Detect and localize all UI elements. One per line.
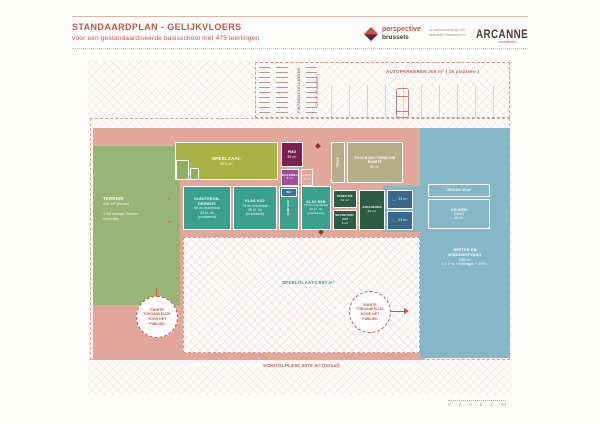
room-terrein: TERREIN 465 m² (totaal) + 54 nieuwe bome… [93,146,180,305]
perspective-wordmark: perspective brussels [382,26,421,41]
scale-tick: 4 [469,402,472,407]
room-keuken: KEUKEN (klein) 30 m² [428,199,490,229]
scale-bar: 0 2 4 6 8 10 [448,400,506,407]
sanitair-name: SANITAIR [287,200,291,216]
public-access-circle-right: RUIMTE TOEGANKELIJK VOOR HET PUBLIEK [349,291,391,333]
room-keukenbar: KEUKENBAR 8 m² [281,169,299,186]
right-arrow-icon [404,308,409,314]
room-berging-b: ← 23 m² [387,211,413,230]
klas-m1b-note: (voorbeeld) [307,212,324,216]
page-title: STANDAARDPLAN - GELIJKVLOERS [72,22,242,32]
klas-ko2-note: (voorbeeld) [246,212,264,216]
dimension-label: 10 [167,219,171,224]
plan-sheet: STANDAARDPLAN - GELIJKVLOERS voor een ge… [0,0,600,424]
room-klas-ko2: KLAS KO2 79 m² maximaal 26 kl. lln (voor… [233,186,277,230]
archieven-area: 40 m² [368,210,377,214]
room-opslag: OPSLAG 12 m² [428,184,490,197]
collaboration-note: in samenwerking met Mathilde Fabauma en [429,28,475,39]
parking-strip: FIETSENSTALLINGEN 121 m² (88 plaatsen) A… [255,62,510,118]
room-psychomotoriek: PSYCHOMOTORISCHE RUIMTE 60 m² [347,142,403,183]
speelplaats-label: SPEELPLAATS 850 m² [282,280,335,285]
room-lift: LIFT 6 m² [301,169,313,186]
site-total-label: SCHOOLPLEIN 3375 m² (totaal) [263,364,340,369]
bike-parking-label-line2: 121 m² (88 plaatsen) [315,74,319,107]
circle-line4: PUBLIEK [149,322,165,327]
stage-storage-box-small [190,168,199,180]
bike-rack-icon [259,67,270,113]
page-subtitle: voor een gestandaardiseerde basisschool … [72,35,259,42]
kleuter-note: (voorbeeld) [198,215,216,219]
stage-storage-box [176,160,189,180]
header-bottom-rule [72,48,528,49]
room-sanitair-strip: WC SANITAIR [279,186,299,230]
circle-line4: PUBLIEK [362,317,378,322]
public-access-circle-left: RUIMTE TOEGANKELIJK VOOR HET PUBLIEK [136,296,178,338]
arcanne-logo: ARCANNE [476,27,528,41]
left-arrow-icon: ← [392,197,396,202]
room-directie: DIRECTIE 12 m² [333,190,357,208]
secretariaat-area: 8 m² [342,222,349,226]
bike-rack-icon [276,67,288,113]
courtyard-speelplaats: SPEELPLAATS 850 m² [183,237,420,353]
bike-parking-label-line1: FIETSENSTALLINGEN [296,68,301,114]
car-stall-lines [331,85,509,117]
scale-tick: 2 [459,402,462,407]
perspective-logo-icon [364,27,378,41]
scale-tick: 0 [448,402,451,407]
room-secretariaat: SECRETARI- AAT 8 m² [333,210,357,230]
bike-parking-label: FIETSENSTALLINGEN 121 m² (88 plaatsen) [290,64,326,117]
left-arrow-icon: ← [392,218,396,223]
keuken-area: 30 m² [454,216,463,220]
perspective-wordmark-bottom: brussels [382,34,421,41]
pmd-area: 35 m² [287,155,296,159]
trap-name: TRAP [336,157,340,167]
scale-tick: 10 [501,402,506,407]
collaboration-note-line2: Mathilde Fabauma en [429,33,475,38]
directie-area: 12 m² [341,199,350,203]
refter-label: REFTER EN KINDEROPVANG 630 m² ( 1.2 m² /… [425,248,505,266]
scale-tick: 6 [480,402,483,407]
perspective-wordmark-top: perspective [382,26,421,34]
refter-line4: ( 1.2 m² / leerlingen + 30% ) [425,262,505,266]
room-wc: WC [281,188,297,197]
scale-tick: 8 [490,402,493,407]
room-trap: TRAP [331,142,345,183]
keukenbar-area: 8 m² [287,177,294,181]
berging-a-area: 23 m² [398,197,407,201]
terrein-note2: voorzien [103,217,138,222]
speelzaal-area: 223 m² [220,162,232,167]
psycho-area: 60 m² [370,165,379,169]
dimension-label: 10 [167,196,171,201]
car-icon [396,88,409,118]
room-archieven: ARCHIEVEN 40 m² [359,190,385,230]
public-access-arrow-line [391,311,404,312]
berging-b-area: 23 m² [398,218,407,222]
room-klas-m1b: KLAS M1B 79 m² maximaal 26 kl. lln (voor… [301,186,331,230]
room-berging-a: ← 23 m² [387,190,413,209]
lift-area: 6 m² [304,178,311,182]
wc-name: WC [286,191,291,195]
header-top-rule [72,16,528,17]
room-pmd: PMD 35 m² [281,142,303,167]
opslag-name: OPSLAG 12 m² [446,188,471,192]
room-kleuteronderwijs: KLEUTERON- DERWIJS 66 m² maximaal 23 kl.… [183,186,231,230]
arcanne-logo-sub: architecten [499,40,517,44]
car-parking-label: AUTOPARKEREN 300 m² ( 15 plaatsen ) [386,69,479,74]
refter-zone [420,128,510,358]
